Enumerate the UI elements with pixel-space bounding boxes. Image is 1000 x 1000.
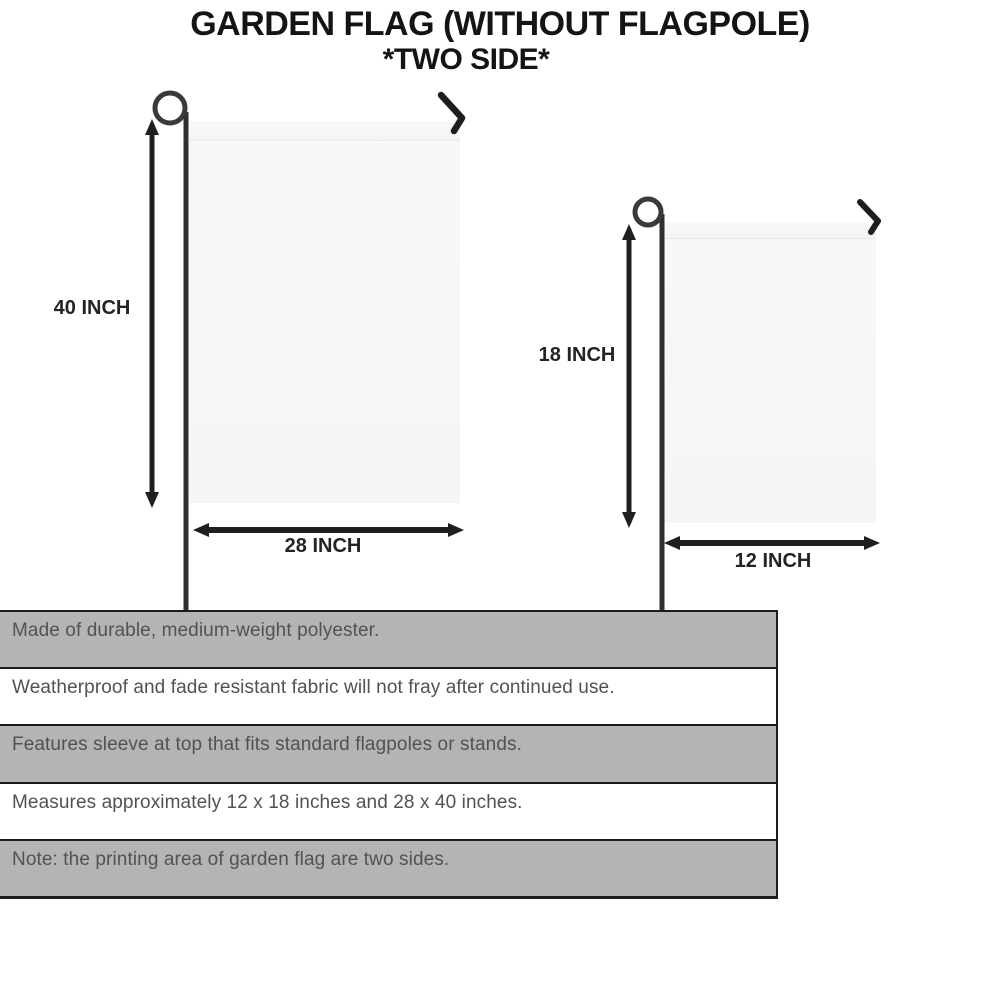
feature-row-weatherproof: Weatherproof and fade resistant fabric w… bbox=[0, 669, 776, 726]
page-subtitle: *TWO SIDE* bbox=[0, 43, 966, 76]
arrowhead-right-icon bbox=[448, 523, 464, 537]
page-title: GARDEN FLAG (WITHOUT FLAGPOLE) bbox=[0, 6, 1000, 43]
large-flag-sleeve-line bbox=[189, 140, 460, 141]
product-infographic: GARDEN FLAG (WITHOUT FLAGPOLE) *TWO SIDE… bbox=[0, 0, 1000, 1000]
arrowhead-left-icon bbox=[193, 523, 209, 537]
arrowhead-left-icon bbox=[664, 536, 680, 550]
arrowhead-down-icon bbox=[622, 512, 636, 528]
small-flag-sleeve-line bbox=[664, 238, 876, 239]
feature-row-measures: Measures approximately 12 x 18 inches an… bbox=[0, 784, 776, 841]
large-flag-fabric bbox=[189, 121, 460, 503]
feature-table: Made of durable, medium-weight polyester… bbox=[0, 610, 778, 899]
arrowhead-up-icon bbox=[145, 119, 159, 135]
feature-row-note: Note: the printing area of garden flag a… bbox=[0, 841, 776, 896]
title-block: GARDEN FLAG (WITHOUT FLAGPOLE) *TWO SIDE… bbox=[0, 6, 1000, 76]
large-flagpole-loop-icon bbox=[155, 93, 185, 123]
large-flag-width-label: 28 INCH bbox=[243, 535, 403, 558]
feature-row-sleeve: Features sleeve at top that fits standar… bbox=[0, 726, 776, 783]
arrowhead-right-icon bbox=[864, 536, 880, 550]
small-flag-width-label: 12 INCH bbox=[695, 550, 851, 573]
arrowhead-down-icon bbox=[145, 492, 159, 508]
large-flag-height-label: 40 INCH bbox=[40, 297, 144, 320]
arrowhead-up-icon bbox=[622, 224, 636, 240]
small-flagpole-loop-icon bbox=[635, 199, 661, 225]
small-flag-height-label: 18 INCH bbox=[505, 344, 649, 367]
small-flag-fabric bbox=[664, 222, 876, 523]
feature-row-material: Made of durable, medium-weight polyester… bbox=[0, 612, 776, 669]
